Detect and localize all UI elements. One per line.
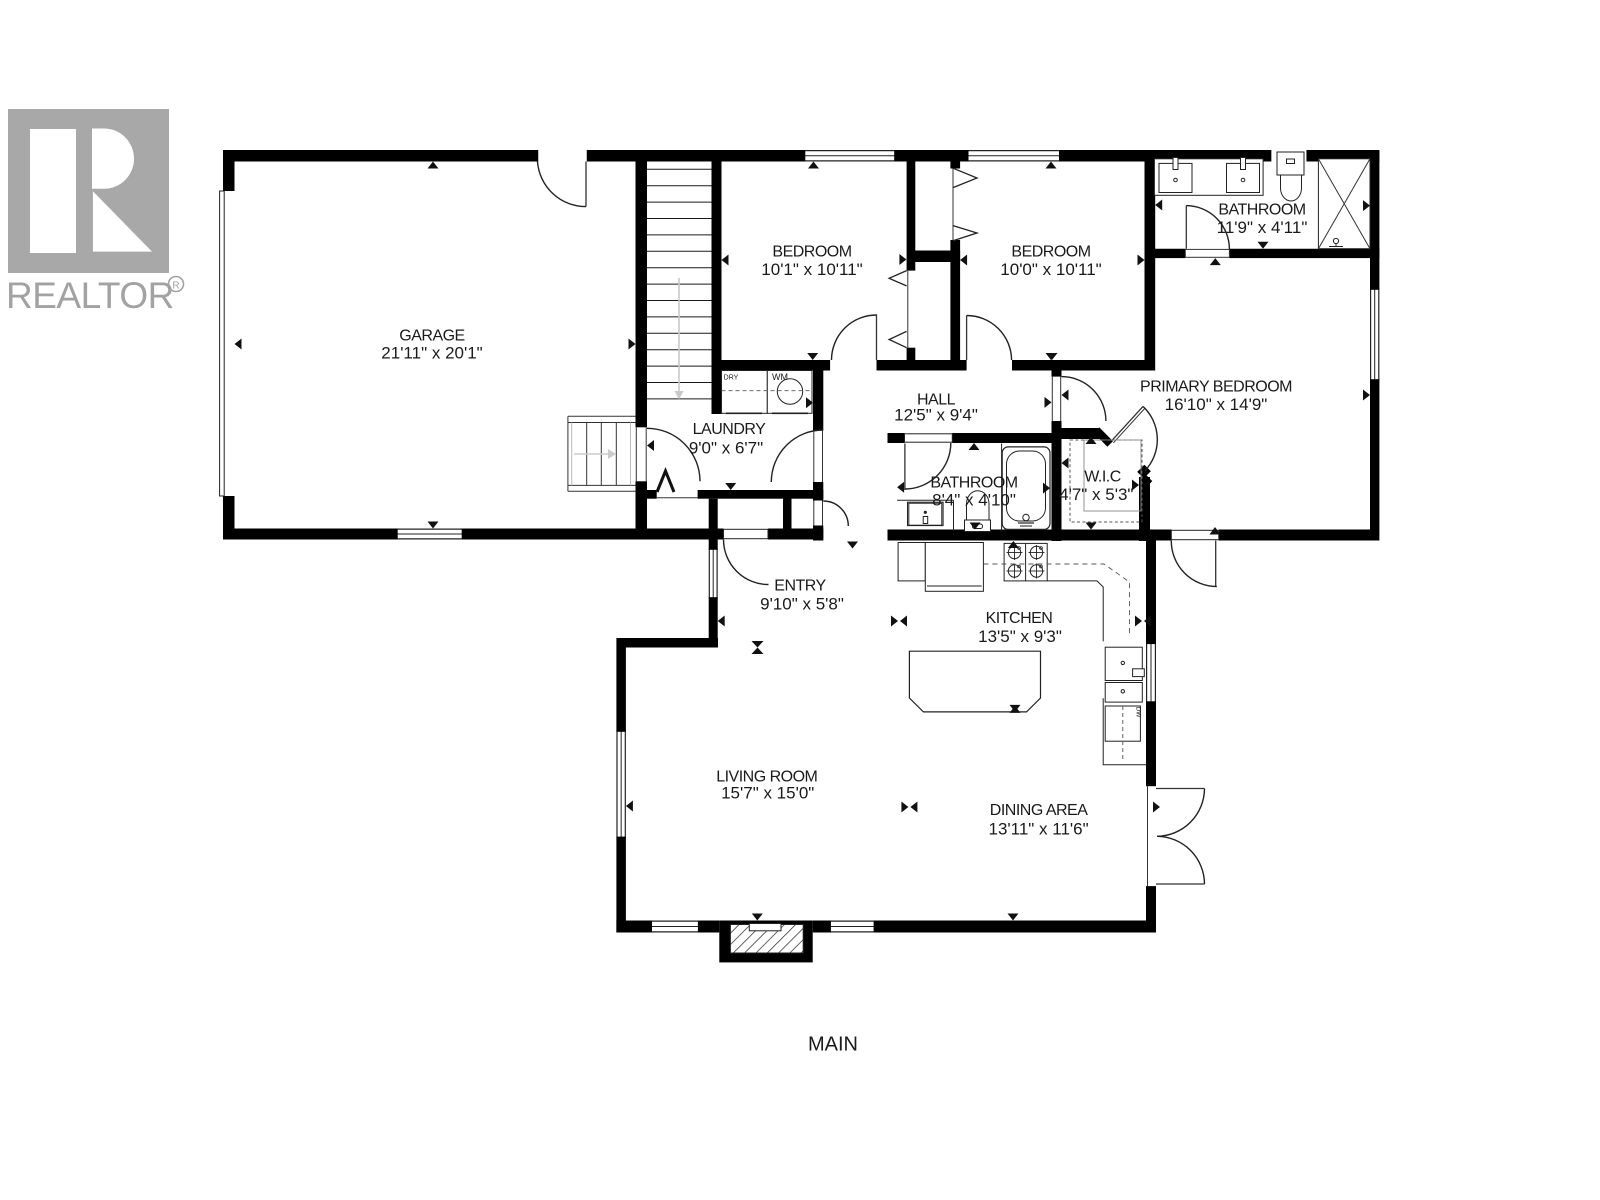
svg-text:MAIN: MAIN: [808, 1034, 858, 1056]
svg-text:DINING AREA: DINING AREA: [990, 802, 1088, 819]
svg-text:10'1" x 10'11": 10'1" x 10'11": [761, 260, 862, 279]
svg-text:13'5" x 9'3": 13'5" x 9'3": [978, 627, 1062, 646]
svg-text:R: R: [172, 281, 179, 292]
svg-text:BATHROOM: BATHROOM: [1218, 202, 1305, 219]
svg-text:ENTRY: ENTRY: [774, 578, 826, 595]
svg-text:REALTOR: REALTOR: [6, 275, 174, 316]
svg-text:BEDROOM: BEDROOM: [1011, 244, 1090, 261]
svg-text:4'7" x 5'3": 4'7" x 5'3": [1059, 485, 1133, 504]
svg-text:PRIMARY BEDROOM: PRIMARY BEDROOM: [1140, 379, 1292, 396]
svg-text:9'10" x 5'8": 9'10" x 5'8": [760, 595, 844, 614]
svg-text:BATHROOM: BATHROOM: [930, 475, 1017, 492]
svg-text:DW: DW: [1135, 707, 1142, 719]
svg-text:13'11" x 11'6": 13'11" x 11'6": [989, 820, 1089, 839]
svg-text:9'0" x 6'7": 9'0" x 6'7": [689, 439, 763, 458]
svg-text:21'11" x 20'1": 21'11" x 20'1": [381, 344, 482, 363]
svg-text:10'0" x 10'11": 10'0" x 10'11": [1000, 260, 1101, 279]
svg-text:12'5" x 9'4": 12'5" x 9'4": [894, 406, 978, 425]
svg-text:WM: WM: [772, 372, 788, 382]
svg-text:11'9" x 4'11": 11'9" x 4'11": [1217, 218, 1308, 237]
svg-text:GARAGE: GARAGE: [399, 328, 464, 345]
svg-text:DRY: DRY: [724, 375, 739, 382]
svg-text:KITCHEN: KITCHEN: [986, 610, 1053, 627]
svg-text:15'7" x 15'0": 15'7" x 15'0": [721, 784, 814, 803]
svg-text:W.I.C: W.I.C: [1084, 469, 1121, 486]
svg-text:16'10" x 14'9": 16'10" x 14'9": [1165, 395, 1268, 414]
svg-text:LAUNDRY: LAUNDRY: [693, 421, 767, 438]
svg-text:8'4" x 4'10": 8'4" x 4'10": [932, 491, 1016, 510]
svg-text:BEDROOM: BEDROOM: [772, 244, 851, 261]
